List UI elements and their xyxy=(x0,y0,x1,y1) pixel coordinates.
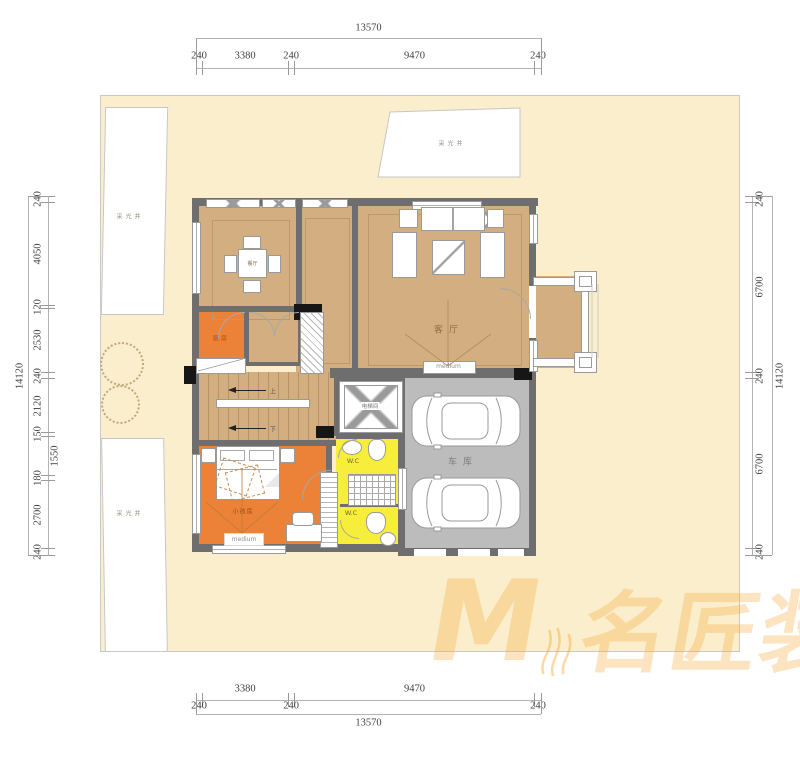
dim-total-label: 14120 xyxy=(775,362,786,388)
dim-label: 2700 xyxy=(33,504,44,525)
dim-line xyxy=(48,196,49,555)
dim-label: 4050 xyxy=(33,243,44,264)
dim-tick xyxy=(196,700,197,714)
dim-label: 3380 xyxy=(235,684,256,695)
dim-tick xyxy=(752,196,772,197)
dim-label: 9470 xyxy=(404,51,425,62)
dim-total-label: 13570 xyxy=(355,23,381,34)
dim-tick xyxy=(202,61,203,75)
dimension-annotations: 2403380240947024013570240338024094702401… xyxy=(0,0,800,759)
dim-total-line xyxy=(28,196,29,555)
dim-label: 180 xyxy=(33,470,44,486)
dim-label: 240 xyxy=(530,701,546,712)
dim-total-label: 13570 xyxy=(355,718,381,729)
dim-label: 240 xyxy=(33,544,44,560)
dim-tick xyxy=(541,700,542,714)
dim-label: 240 xyxy=(755,544,766,560)
dim-total-label: 14120 xyxy=(15,362,26,388)
dim-label: 240 xyxy=(530,51,546,62)
dim-label: 240 xyxy=(33,191,44,207)
dim-label: 240 xyxy=(755,368,766,384)
dim-tick xyxy=(541,38,542,68)
dim-label: 240 xyxy=(755,191,766,207)
dim-tick xyxy=(28,555,48,556)
dim-label: 1550 xyxy=(50,445,61,466)
dim-line xyxy=(196,700,541,701)
dim-label: 2120 xyxy=(33,395,44,416)
dim-total-line xyxy=(772,196,773,555)
dim-label: 240 xyxy=(191,701,207,712)
dim-tick xyxy=(288,61,289,75)
dim-line xyxy=(752,196,753,555)
dim-tick xyxy=(752,555,772,556)
dim-label: 2530 xyxy=(33,330,44,351)
dim-label: 6700 xyxy=(755,453,766,474)
dim-tick xyxy=(196,38,197,68)
dim-label: 120 xyxy=(33,299,44,315)
dim-label: 240 xyxy=(283,701,299,712)
dim-label: 150 xyxy=(33,426,44,442)
dim-line xyxy=(196,68,541,69)
dim-tick xyxy=(28,196,48,197)
dim-label: 240 xyxy=(283,51,299,62)
dim-label: 240 xyxy=(191,51,207,62)
dim-total-line xyxy=(196,38,541,39)
dim-tick xyxy=(534,61,535,75)
dim-label: 240 xyxy=(33,368,44,384)
dim-label: 3380 xyxy=(235,51,256,62)
dim-label: 6700 xyxy=(755,277,766,298)
dim-total-line xyxy=(196,714,541,715)
floorplan-canvas: 2403380240947024013570240338024094702401… xyxy=(0,0,800,759)
dim-tick xyxy=(294,61,295,75)
dim-label: 9470 xyxy=(404,684,425,695)
